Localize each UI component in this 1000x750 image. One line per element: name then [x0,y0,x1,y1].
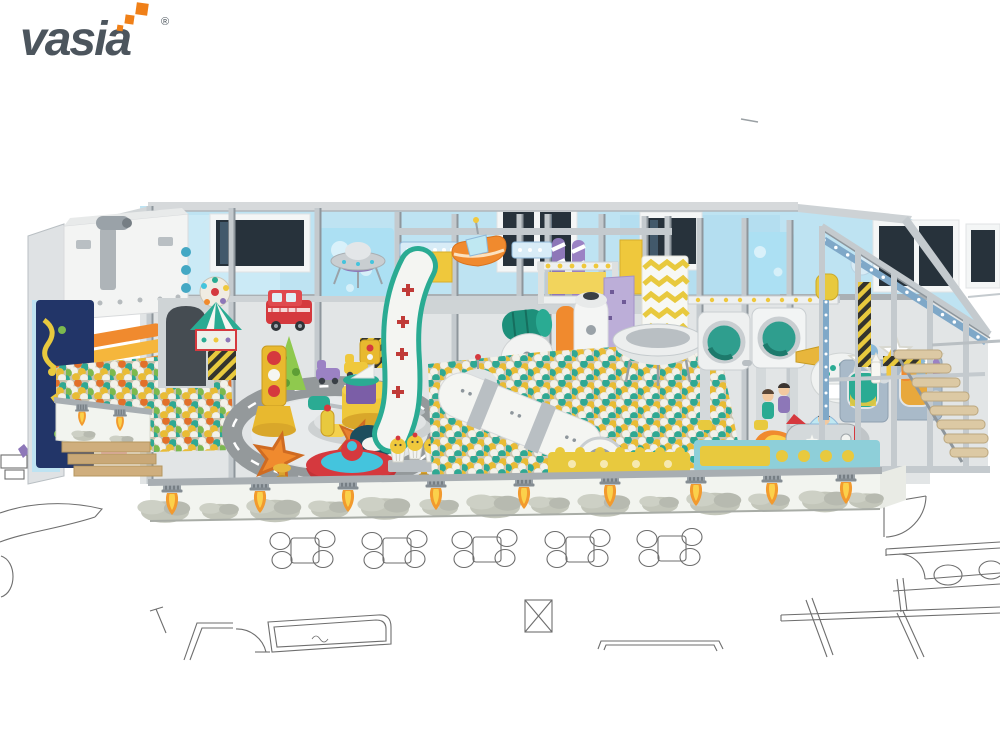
vasia-logo: vasia ® [20,4,200,76]
window [966,224,1000,288]
floor-plan-low-table [598,641,723,651]
rail-to-edge [968,294,1000,297]
ceiling-beam [148,202,798,211]
page: vasia ® [0,0,1000,750]
floor-plan-tables [270,529,702,569]
vasia-logo-text: vasia [20,12,130,67]
logo-orange-square-icon [117,25,124,32]
logo-orange-square-icon [124,14,134,24]
wooden-steps [62,442,162,476]
dartboard-wall-toy [200,277,230,307]
window [210,214,310,272]
floor-plan-right-walls [781,542,1000,659]
playground-render [0,0,1000,750]
space-poster [742,232,794,294]
faint-plan-dash [741,119,758,122]
floor-plan-column-symbol [525,600,552,632]
wavy-slide [392,266,418,434]
crossbeam [396,228,672,235]
hazard-column [858,282,871,367]
floor-plan-left-walls [150,607,391,660]
registered-trademark: ® [161,16,169,28]
teal-puzzle-mat [694,440,880,472]
ufo-saucer-bowl [613,324,703,386]
logo-orange-square-icon [135,2,149,16]
